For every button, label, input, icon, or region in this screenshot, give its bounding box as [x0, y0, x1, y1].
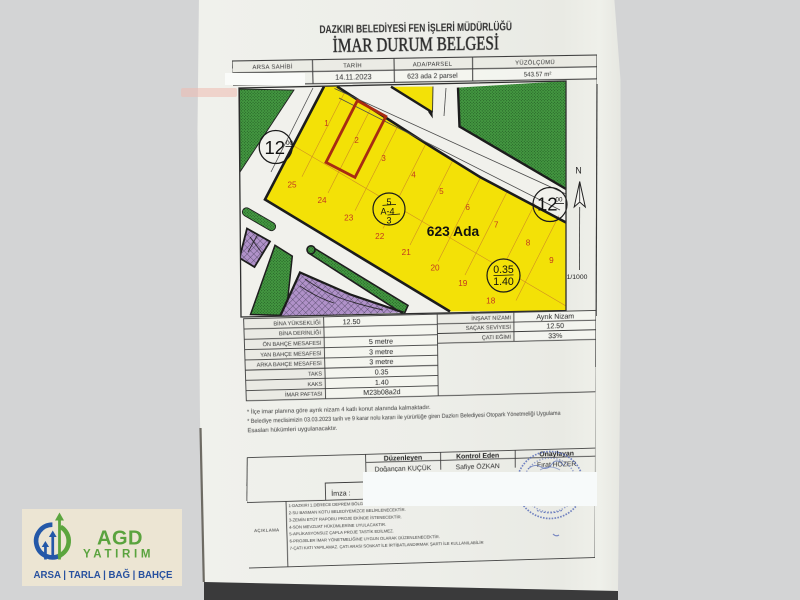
svg-text:1.40: 1.40 — [493, 276, 514, 288]
svg-text:YÜZÖLÇÜMÜ: YÜZÖLÇÜMÜ — [515, 59, 555, 67]
svg-text:1.40: 1.40 — [375, 378, 389, 387]
svg-text:6: 6 — [465, 203, 470, 212]
svg-text:12.50: 12.50 — [546, 321, 564, 330]
svg-text:3: 3 — [381, 154, 386, 163]
svg-text:AGD: AGD — [97, 528, 143, 550]
svg-text:18: 18 — [486, 297, 496, 306]
svg-text:19: 19 — [458, 279, 468, 288]
svg-text:22: 22 — [375, 232, 385, 241]
svg-text:M23b08a2d: M23b08a2d — [363, 387, 400, 397]
svg-text:ARSA | TARLA | BAĞ | BAHÇE: ARSA | TARLA | BAĞ | BAHÇE — [34, 568, 173, 581]
svg-text:8: 8 — [526, 239, 531, 248]
svg-text:BİNA DERİNLİĞİ: BİNA DERİNLİĞİ — [279, 329, 322, 337]
svg-text:2: 2 — [354, 136, 359, 145]
svg-text:SAÇAK SEVİYESİ: SAÇAK SEVİYESİ — [466, 324, 512, 332]
svg-text:5: 5 — [439, 187, 444, 196]
svg-text:Düzenleyen: Düzenleyen — [384, 453, 422, 463]
svg-text:N: N — [575, 166, 581, 176]
svg-text:21: 21 — [402, 248, 412, 257]
svg-text:0.35: 0.35 — [493, 264, 514, 276]
svg-text:00: 00 — [286, 140, 294, 147]
svg-text:9: 9 — [549, 256, 554, 265]
svg-text:00: 00 — [556, 197, 563, 204]
svg-text:Esasları hükümleri uygulanacak: Esasları hükümleri uygulanacaktır. — [247, 425, 337, 434]
svg-text:4-SON MEVZUAT HÜKÜMLERİNE UYUL: 4-SON MEVZUAT HÜKÜMLERİNE UYULACAKTIR. — [289, 522, 386, 530]
svg-text:KAKS: KAKS — [307, 382, 322, 388]
svg-text:12: 12 — [537, 194, 558, 215]
svg-text:20: 20 — [430, 264, 440, 273]
svg-text:ADA/PARSEL: ADA/PARSEL — [413, 61, 453, 69]
svg-text:623 Ada: 623 Ada — [427, 224, 480, 239]
svg-text:12: 12 — [265, 137, 286, 158]
svg-text:1/1000: 1/1000 — [567, 274, 588, 281]
svg-text:33%: 33% — [548, 331, 563, 340]
svg-text:3 metre: 3 metre — [369, 347, 393, 356]
svg-text:3: 3 — [386, 216, 391, 226]
svg-text:İMAR DURUM BELGESİ: İMAR DURUM BELGESİ — [332, 32, 499, 57]
svg-text:23: 23 — [344, 214, 354, 223]
svg-text:YATIRIM: YATIRIM — [83, 549, 153, 561]
svg-text:ÇATI EĞİMİ: ÇATI EĞİMİ — [482, 334, 512, 342]
svg-text:5 metre: 5 metre — [369, 337, 393, 347]
svg-text:3 metre: 3 metre — [369, 357, 393, 366]
svg-text:TAKS: TAKS — [308, 371, 322, 377]
svg-text:24: 24 — [317, 196, 327, 205]
svg-text:25: 25 — [287, 180, 297, 189]
svg-text:AÇIKLAMA: AÇIKLAMA — [254, 528, 280, 534]
svg-text:5: 5 — [386, 197, 391, 207]
svg-text:7: 7 — [494, 221, 499, 230]
svg-text:ÖN BAHÇE MESAFESİ: ÖN BAHÇE MESAFESİ — [262, 340, 321, 348]
svg-text:İmza :: İmza : — [331, 489, 351, 498]
svg-text:İMAR PAFTASI: İMAR PAFTASI — [285, 391, 323, 399]
svg-text:Kontrol Eden: Kontrol Eden — [456, 451, 499, 461]
svg-text:4: 4 — [411, 171, 416, 180]
svg-text:0.35: 0.35 — [375, 367, 389, 376]
svg-text:Safiye ÖZKAN: Safiye ÖZKAN — [456, 462, 500, 471]
svg-text:1: 1 — [324, 119, 329, 128]
